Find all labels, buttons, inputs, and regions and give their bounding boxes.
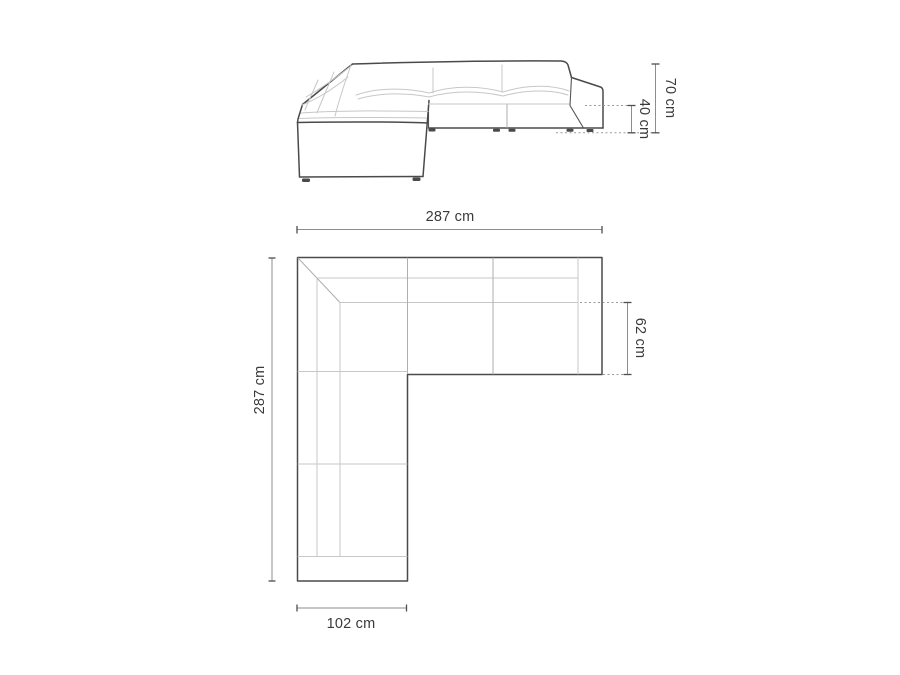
plan-dim-chaise-width: 102 cm — [297, 605, 407, 633]
plan-dim-total-depth: 287 cm — [252, 258, 276, 581]
dim-label-chaise-width: 102 cm — [327, 616, 376, 632]
dim-label-total-width: 287 cm — [426, 209, 475, 225]
dimension-drawing-svg: 40 cm 70 cm — [0, 0, 900, 675]
sofa-plan-outline — [298, 258, 603, 582]
dim-label-seat-height: 40 cm — [636, 99, 652, 140]
corner-diagonal-seam — [298, 258, 340, 303]
elevation-view: 40 cm 70 cm — [298, 61, 679, 182]
dim-label-seat-depth: 62 cm — [632, 318, 648, 359]
sofa-elevation-feet — [302, 129, 594, 183]
sofa-elevation-seams — [300, 65, 570, 128]
plan-dim-total-width: 287 cm — [297, 209, 602, 234]
plan-view: 287 cm 287 cm 62 cm — [252, 209, 648, 632]
dim-label-total-height: 70 cm — [662, 78, 678, 119]
sofa-plan-seams — [298, 258, 578, 557]
sofa-dimension-drawing: 40 cm 70 cm — [0, 0, 900, 675]
sofa-elevation-outline — [298, 61, 604, 177]
plan-dim-seat-depth: 62 cm — [580, 303, 648, 375]
dim-label-total-depth: 287 cm — [252, 366, 268, 415]
